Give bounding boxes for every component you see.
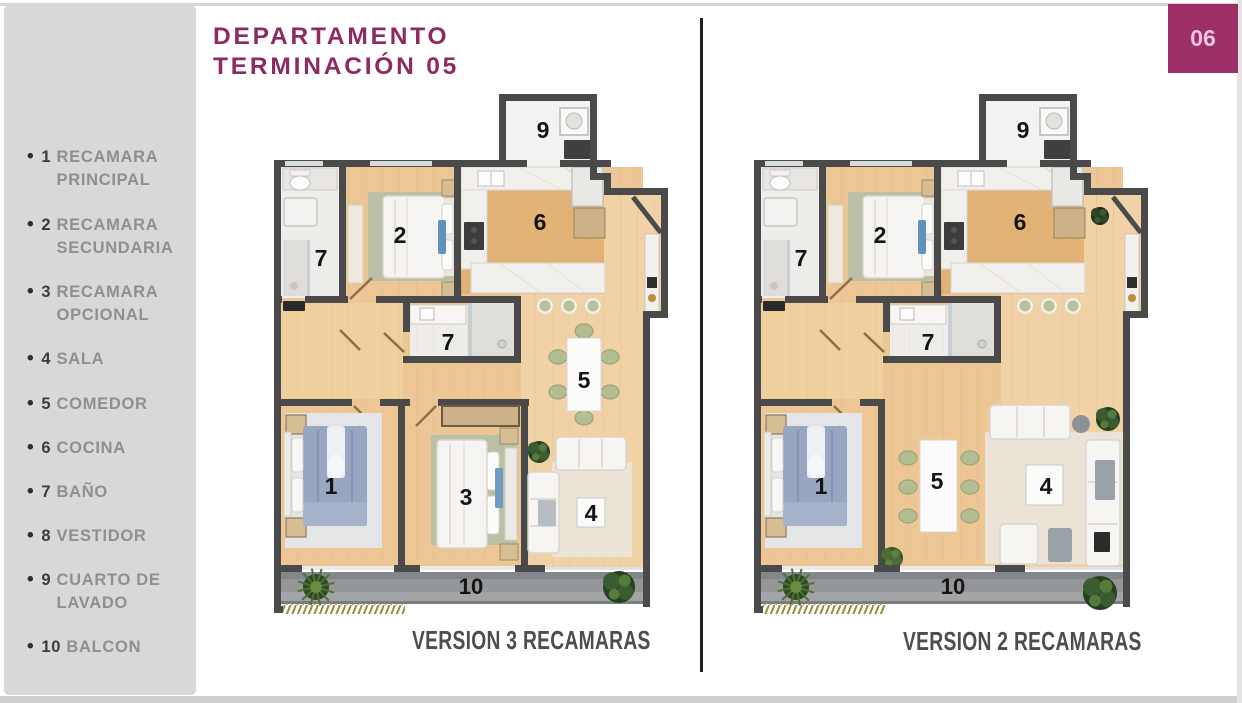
svg-text:7: 7 [795, 245, 808, 271]
svg-text:6: 6 [534, 209, 547, 235]
svg-text:1: 1 [815, 473, 828, 499]
svg-text:6: 6 [1014, 209, 1027, 235]
svg-text:3: 3 [460, 484, 473, 510]
svg-text:7: 7 [315, 245, 328, 271]
svg-text:4: 4 [1040, 473, 1053, 499]
svg-text:4: 4 [585, 500, 598, 526]
svg-text:1: 1 [325, 473, 338, 499]
svg-text:7: 7 [442, 329, 455, 355]
svg-text:2: 2 [394, 222, 407, 248]
svg-text:5: 5 [578, 367, 591, 393]
svg-text:10: 10 [459, 574, 483, 599]
svg-text:9: 9 [537, 117, 550, 143]
svg-text:2: 2 [874, 222, 887, 248]
svg-text:5: 5 [931, 468, 944, 494]
svg-text:7: 7 [922, 329, 935, 355]
svg-text:10: 10 [941, 574, 965, 599]
svg-text:9: 9 [1017, 117, 1030, 143]
